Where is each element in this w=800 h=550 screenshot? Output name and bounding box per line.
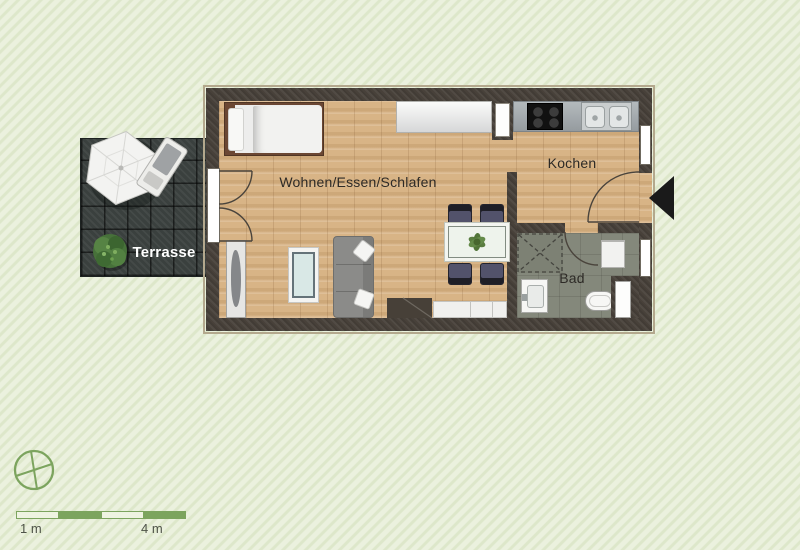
coffee-table	[288, 247, 319, 303]
scale-segment	[16, 511, 58, 519]
bed	[224, 102, 324, 156]
dining-chair	[480, 263, 504, 285]
partition-kitchen-bottom	[507, 172, 517, 223]
sink-basin	[609, 106, 629, 128]
sofa	[333, 236, 374, 318]
washbasin	[521, 279, 548, 313]
scale-label-4m: 4 m	[141, 521, 163, 536]
floor-plan-page: Terrasse	[0, 0, 800, 550]
wardrobe-contents	[231, 250, 241, 307]
sofa-backrest	[363, 237, 373, 317]
bath-label: Bad	[552, 270, 592, 286]
scale-segment	[58, 511, 101, 519]
washbasin-tap	[522, 294, 527, 301]
wardrobe	[226, 240, 246, 318]
bath-wall-top-a	[517, 223, 565, 233]
compass-icon	[15, 451, 53, 489]
shower	[517, 233, 563, 273]
cooktop	[527, 103, 563, 130]
tall-cabinet	[495, 103, 510, 137]
double-sink	[581, 102, 632, 131]
wall-top	[206, 88, 652, 101]
bath-window	[640, 239, 651, 277]
wall-bottom	[206, 318, 652, 331]
coffee-table-top	[292, 252, 315, 298]
sink-basin	[585, 106, 605, 128]
terrace-label: Terrasse	[120, 244, 208, 261]
bench	[433, 301, 507, 318]
duct	[387, 298, 432, 318]
living-room-label: Wohnen/Essen/Schlafen	[258, 174, 458, 190]
sideboard	[396, 101, 492, 133]
bed-duvet	[253, 106, 322, 153]
entrance-arrow-icon	[649, 176, 674, 220]
dining-table	[444, 222, 510, 262]
washbasin-bowl	[527, 285, 544, 308]
bath-corner-door	[615, 281, 631, 318]
washing-machine	[601, 240, 625, 268]
kitchen-window	[640, 125, 651, 165]
terrace-door-threshold	[207, 168, 220, 243]
scale-label-1m: 1 m	[20, 521, 42, 536]
kitchen-label: Kochen	[522, 155, 622, 171]
scale-segment	[101, 511, 143, 519]
scale-bar	[16, 511, 186, 519]
bath-wall-top-b	[598, 223, 639, 233]
scale-segment	[143, 511, 186, 519]
dining-chair	[448, 263, 472, 285]
dining-table-top	[448, 226, 506, 258]
bed-pillow	[228, 108, 244, 151]
